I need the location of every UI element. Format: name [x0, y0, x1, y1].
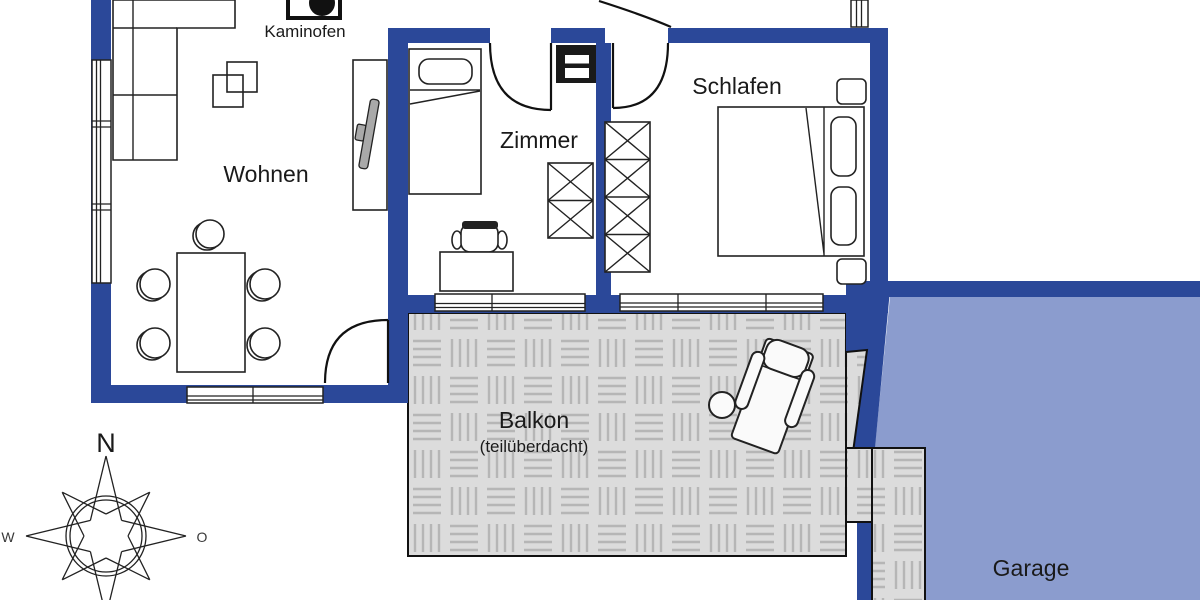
steps-large	[872, 448, 925, 600]
wall-top-c	[668, 28, 888, 43]
zimmer-bed	[409, 49, 481, 194]
balcony-table	[709, 392, 735, 418]
chair	[137, 269, 170, 301]
compass-north: N	[96, 428, 116, 458]
label-garage: Garage	[993, 555, 1070, 581]
side-tables	[213, 62, 257, 107]
kaminofen-icon	[288, 0, 340, 18]
desk	[440, 252, 513, 291]
label-schlafen: Schlafen	[692, 73, 782, 99]
sofa	[113, 0, 235, 160]
window-schlafen-balcony	[620, 294, 823, 311]
label-balkon: Balkon	[499, 407, 569, 433]
chair	[247, 269, 280, 301]
zimmer-wardrobe	[548, 163, 593, 238]
door-schlafen	[613, 43, 668, 108]
steps-small	[846, 448, 873, 522]
desk-chair	[452, 221, 507, 252]
schlafen-wardrobe	[605, 122, 650, 272]
chimney-icon	[556, 45, 596, 83]
compass-rose: N W O	[1, 428, 207, 600]
door-top-arc	[599, 1, 671, 27]
nightstand-top	[837, 79, 866, 104]
nightstand-bottom	[837, 259, 866, 284]
wall-wohnen-zimmer	[388, 28, 408, 403]
tv-board	[350, 60, 387, 210]
chair	[137, 328, 170, 360]
label-wohnen: Wohnen	[223, 161, 308, 187]
window-wohnen-bottom	[187, 387, 323, 403]
window-zimmer-balcony	[435, 294, 585, 311]
wall-garage-top	[846, 281, 1200, 297]
wall-top-b	[551, 28, 605, 43]
window-left	[92, 60, 111, 283]
window-top-right	[851, 0, 868, 27]
chair	[247, 328, 280, 360]
dining-table	[177, 253, 245, 372]
door-zimmer	[490, 43, 551, 110]
label-balkon-note: (teilüberdacht)	[480, 437, 589, 456]
label-kaminofen: Kaminofen	[264, 22, 345, 41]
label-zimmer: Zimmer	[500, 127, 578, 153]
door-balcony	[325, 320, 388, 383]
chair	[193, 220, 224, 250]
double-bed	[718, 107, 864, 256]
wall-top-a	[388, 28, 490, 43]
wall-right	[870, 28, 888, 313]
compass-east: O	[197, 529, 208, 545]
floor-plan: Kaminofen Wohnen Zimmer Schlafen Balkon …	[0, 0, 1200, 600]
compass-west: W	[1, 529, 15, 545]
